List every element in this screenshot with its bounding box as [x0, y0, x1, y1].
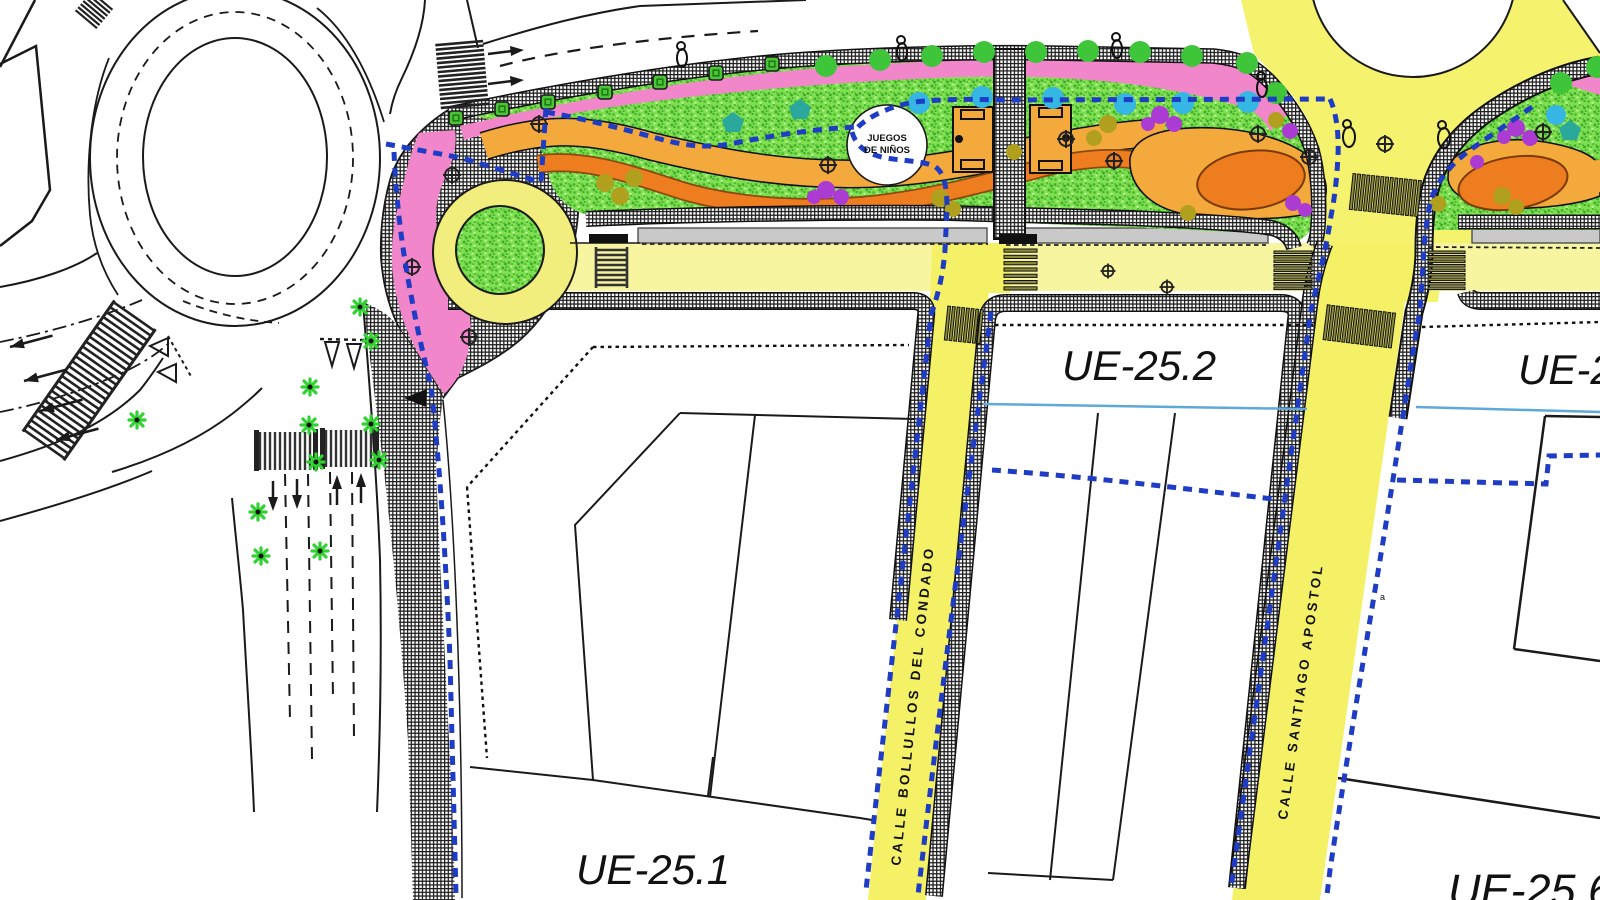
- svg-text:a: a: [1380, 592, 1385, 602]
- svg-text:JUEGOS: JUEGOS: [867, 133, 907, 144]
- svg-text:UE-25.1: UE-25.1: [576, 846, 730, 893]
- svg-text:UE-25.6: UE-25.6: [1448, 865, 1600, 900]
- svg-text:DE NIÑOS: DE NIÑOS: [864, 145, 910, 156]
- svg-text:UE-25.3: UE-25.3: [1518, 346, 1600, 393]
- svg-text:UE-25.2: UE-25.2: [1062, 342, 1216, 389]
